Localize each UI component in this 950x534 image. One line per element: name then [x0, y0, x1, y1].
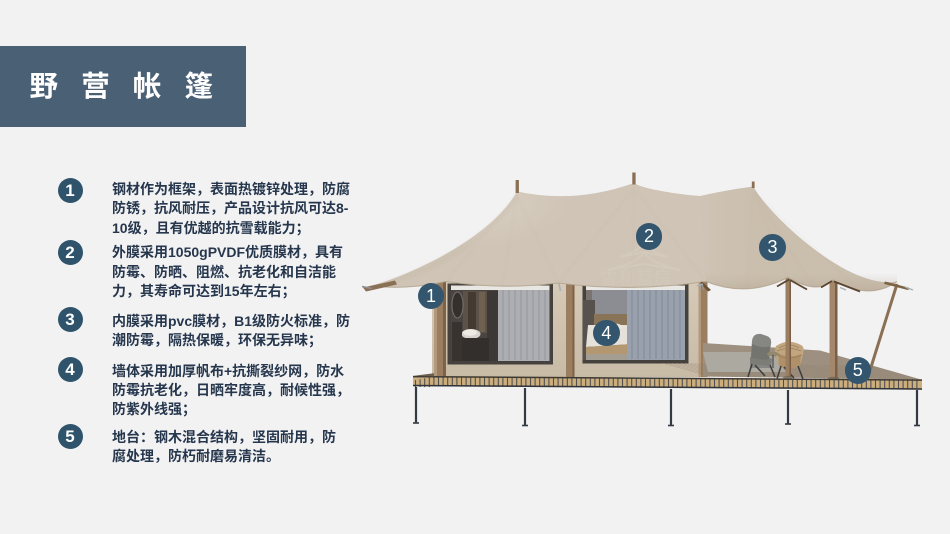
- svg-text:雪利营房: 雪利营房: [600, 265, 672, 290]
